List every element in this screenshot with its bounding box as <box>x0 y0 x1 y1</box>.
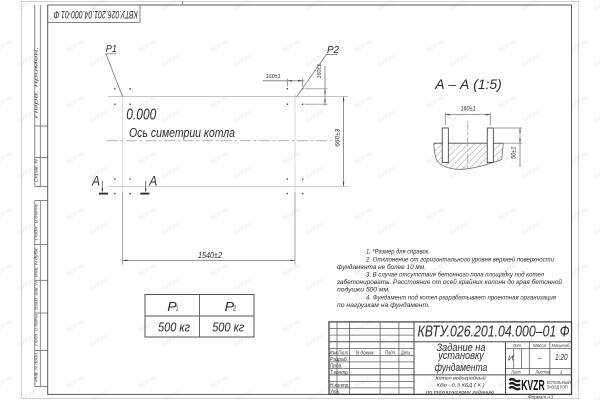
svg-text:Формат А3: Формат А3 <box>528 394 553 399</box>
svg-text:KVZR: KVZR <box>521 377 545 394</box>
svg-text:kvzr.ru: kvzr.ru <box>234 165 252 180</box>
svg-text:kvzr.ru: kvzr.ru <box>594 333 600 348</box>
svg-text:kvzr.ru: kvzr.ru <box>0 151 13 166</box>
svg-text:Подп. и дата: Подп. и дата <box>34 203 39 240</box>
svg-text:по нагрузкам на фундамент.: по нагрузкам на фундамент. <box>337 301 430 309</box>
svg-text:kvzr.ru: kvzr.ru <box>570 151 588 166</box>
svg-text:1: 1 <box>560 370 563 376</box>
svg-text:160±1: 160±1 <box>461 105 476 112</box>
svg-text:kvzr.ru: kvzr.ru <box>90 109 108 124</box>
svg-text:Подп.: Подп. <box>385 350 396 356</box>
svg-text:660±3: 660±3 <box>334 128 341 146</box>
svg-text:500 кг: 500 кг <box>158 320 190 335</box>
svg-text:Подп. и дата: Подп. и дата <box>34 314 39 346</box>
svg-text:kvzr.ru: kvzr.ru <box>426 39 444 54</box>
svg-text:Масштаб: Масштаб <box>552 343 570 349</box>
svg-text:Лист: Лист <box>510 370 520 376</box>
svg-text:kvzr.ru: kvzr.ru <box>594 0 600 12</box>
svg-text:160±1: 160±1 <box>317 64 323 79</box>
svg-text:kvzr.ru: kvzr.ru <box>594 221 600 236</box>
svg-text:50±1: 50±1 <box>511 146 518 159</box>
svg-text:А – А (1:5): А – А (1:5) <box>434 77 502 92</box>
svg-text:kvzr.ru: kvzr.ru <box>282 151 300 166</box>
svg-text:kvzr.ru: kvzr.ru <box>234 53 252 68</box>
svg-text:kvzr.ru: kvzr.ru <box>162 109 180 124</box>
svg-text:kvzr.ru: kvzr.ru <box>570 319 588 334</box>
svg-text:P1: P1 <box>106 44 117 55</box>
svg-text:kvzr.ru: kvzr.ru <box>378 221 396 236</box>
svg-text:kvzr.ru: kvzr.ru <box>594 109 600 124</box>
svg-text:3. В случае отсутствия бетонно: 3. В случае отсутствия бетонного пола пл… <box>366 271 544 279</box>
svg-text:Инв. N подл.: Инв. N подл. <box>34 352 39 382</box>
svg-text:kvzr.ru: kvzr.ru <box>66 151 84 166</box>
svg-text:kvzr.ru: kvzr.ru <box>498 207 516 222</box>
svg-text:1: 1 <box>176 306 179 313</box>
svg-text:kvzr.ru: kvzr.ru <box>234 333 252 348</box>
svg-text:kvzr.ru: kvzr.ru <box>306 221 324 236</box>
svg-text:Разраб.: Разраб. <box>330 357 348 363</box>
svg-text:установку: установку <box>437 350 485 362</box>
svg-text:И: И <box>508 354 514 363</box>
svg-text:kvzr.ru: kvzr.ru <box>210 39 228 54</box>
svg-text:kvzr.ru: kvzr.ru <box>354 151 372 166</box>
svg-text:kvzr.ru: kvzr.ru <box>210 207 228 222</box>
svg-text:kvzr.ru: kvzr.ru <box>306 165 324 180</box>
svg-text:подушки 500 мм.: подушки 500 мм. <box>337 286 390 294</box>
svg-text:–: – <box>537 355 542 362</box>
svg-text:kvzr.ru: kvzr.ru <box>570 95 588 110</box>
svg-text:kvzr.ru: kvzr.ru <box>282 375 300 390</box>
svg-text:kvzr.ru: kvzr.ru <box>0 319 13 334</box>
svg-text:по техническому заданию: по техническому заданию <box>426 389 495 394</box>
svg-text:kvzr.ru: kvzr.ru <box>138 151 156 166</box>
svg-text:kvzr.ru: kvzr.ru <box>306 109 324 124</box>
svg-text:2. Отклонение от горизонтально: 2. Отклонение от горизонтального уровня … <box>365 255 554 263</box>
svg-text:kvzr.ru: kvzr.ru <box>378 165 396 180</box>
svg-text:kvzr.ru: kvzr.ru <box>66 95 84 110</box>
svg-text:kvzr.ru: kvzr.ru <box>498 39 516 54</box>
svg-text:kvzr.ru: kvzr.ru <box>282 39 300 54</box>
svg-text:kvzr.ru: kvzr.ru <box>282 95 300 110</box>
svg-text:kvzr.ru: kvzr.ru <box>66 207 84 222</box>
svg-text:kvzr.ru: kvzr.ru <box>210 95 228 110</box>
svg-text:Утв.: Утв. <box>330 390 340 396</box>
svg-text:kvzr.ru: kvzr.ru <box>66 39 84 54</box>
svg-text:kvzr.ru: kvzr.ru <box>354 375 372 390</box>
svg-text:kvzr.ru: kvzr.ru <box>594 389 600 400</box>
svg-text:КВТУ.026.201.04.000-01 Ф: КВТУ.026.201.04.000-01 Ф <box>54 8 138 20</box>
svg-text:kvzr.ru: kvzr.ru <box>162 333 180 348</box>
svg-text:kvzr.ru: kvzr.ru <box>234 221 252 236</box>
svg-text:Масса: Масса <box>533 343 546 349</box>
svg-text:kvzr.ru: kvzr.ru <box>0 375 13 390</box>
svg-text:kvzr.ru: kvzr.ru <box>450 221 468 236</box>
svg-text:kvzr.ru: kvzr.ru <box>210 263 228 278</box>
svg-text:kvzr.ru: kvzr.ru <box>570 263 588 278</box>
svg-text:kvzr.ru: kvzr.ru <box>522 109 540 124</box>
svg-text:1. *Размер для справок.: 1. *Размер для справок. <box>366 248 430 256</box>
svg-text:Ось симетрии котла: Ось симетрии котла <box>129 125 235 140</box>
svg-text:kvzr.ru: kvzr.ru <box>162 221 180 236</box>
svg-text:kvzr.ru: kvzr.ru <box>138 39 156 54</box>
svg-text:kvzr.ru: kvzr.ru <box>594 165 600 180</box>
svg-text:2: 2 <box>232 306 236 313</box>
svg-text:kvzr.ru: kvzr.ru <box>210 375 228 390</box>
svg-text:Дата: Дата <box>400 350 410 356</box>
svg-text:kvzr.ru: kvzr.ru <box>306 277 324 292</box>
svg-text:kvzr.ru: kvzr.ru <box>138 263 156 278</box>
svg-text:kvzr.ru: kvzr.ru <box>306 333 324 348</box>
svg-text:kvzr.ru: kvzr.ru <box>138 207 156 222</box>
svg-text:Справ. N: Справ. N <box>34 158 39 182</box>
svg-text:kvzr.ru: kvzr.ru <box>570 207 588 222</box>
svg-text:kvzr.ru: kvzr.ru <box>90 221 108 236</box>
svg-text:kvzr.ru: kvzr.ru <box>282 207 300 222</box>
svg-text:kvzr.ru: kvzr.ru <box>90 333 108 348</box>
svg-text:P2: P2 <box>327 45 339 56</box>
svg-text:kvzr.ru: kvzr.ru <box>522 53 540 68</box>
svg-text:Лит.: Лит. <box>512 343 522 349</box>
svg-text:kvzr.ru: kvzr.ru <box>378 109 396 124</box>
svg-text:Котел водогрейный: Котел водогрейный <box>436 374 486 380</box>
svg-text:kvzr.ru: kvzr.ru <box>162 53 180 68</box>
svg-text:kvzr.ru: kvzr.ru <box>138 375 156 390</box>
svg-text:kvzr.ru: kvzr.ru <box>522 221 540 236</box>
svg-text:Инв. N дубл.: Инв. N дубл. <box>34 247 39 277</box>
svg-text:kvzr.ru: kvzr.ru <box>0 95 13 110</box>
svg-text:КВр –0,3 КБД ( К ): КВр –0,3 КБД ( К ) <box>437 383 486 388</box>
svg-text:kvzr.ru: kvzr.ru <box>282 263 300 278</box>
svg-text:Перв. примен.: Перв. примен. <box>34 47 39 119</box>
svg-text:500 кг: 500 кг <box>212 320 244 335</box>
svg-text:kvzr.ru: kvzr.ru <box>282 319 300 334</box>
svg-text:A: A <box>148 172 157 188</box>
svg-text:kvzr.ru: kvzr.ru <box>522 165 540 180</box>
svg-text:фундамента не более 10 мм.: фундамента не более 10 мм. <box>337 263 426 271</box>
svg-text:КВТУ.026.201.04.000–01 Ф: КВТУ.026.201.04.000–01 Ф <box>418 323 570 340</box>
svg-text:kvzr.ru: kvzr.ru <box>354 39 372 54</box>
svg-text:Н.контр.: Н.контр. <box>330 383 350 389</box>
svg-text:kvzr.ru: kvzr.ru <box>450 53 468 68</box>
svg-text:kvzr.ru: kvzr.ru <box>90 277 108 292</box>
svg-text:kvzr.ru: kvzr.ru <box>162 277 180 292</box>
svg-text:kvzr.ru: kvzr.ru <box>354 207 372 222</box>
svg-text:kvzr.ru: kvzr.ru <box>378 53 396 68</box>
svg-text:kvzr.ru: kvzr.ru <box>138 319 156 334</box>
svg-text:kvzr.ru: kvzr.ru <box>0 207 13 222</box>
svg-text:kvzr.ru: kvzr.ru <box>0 263 13 278</box>
svg-text:ЗАВОД РЭП: ЗАВОД РЭП <box>547 385 568 390</box>
svg-text:kvzr.ru: kvzr.ru <box>66 319 84 334</box>
svg-text:kvzr.ru: kvzr.ru <box>570 39 588 54</box>
svg-text:kvzr.ru: kvzr.ru <box>426 207 444 222</box>
svg-text:kvzr.ru: kvzr.ru <box>234 277 252 292</box>
svg-text:Т.контр.: Т.контр. <box>330 370 349 376</box>
svg-text:kvzr.ru: kvzr.ru <box>66 375 84 390</box>
svg-text:фундамента: фундамента <box>435 362 488 374</box>
svg-text:kvzr.ru: kvzr.ru <box>498 95 516 110</box>
svg-text:0.000: 0.000 <box>126 107 156 124</box>
svg-text:забетонировать. Расстояние от: забетонировать. Расстояние от осей крайн… <box>336 278 562 286</box>
svg-text:kvzr.ru: kvzr.ru <box>354 95 372 110</box>
svg-text:kvzr.ru: kvzr.ru <box>162 165 180 180</box>
svg-text:4. Фундамент под котел разраба: 4. Фундамент под котел разрабатывает про… <box>366 293 556 301</box>
svg-text:kvzr.ru: kvzr.ru <box>570 375 588 390</box>
svg-text:kvzr.ru: kvzr.ru <box>354 319 372 334</box>
svg-text:N докум.: N докум. <box>356 350 375 356</box>
svg-text:kvzr.ru: kvzr.ru <box>66 263 84 278</box>
svg-text:1:20: 1:20 <box>555 352 568 362</box>
svg-text:160±1: 160±1 <box>266 74 281 80</box>
svg-text:kvzr.ru: kvzr.ru <box>594 53 600 68</box>
svg-text:kvzr.ru: kvzr.ru <box>210 151 228 166</box>
svg-text:1540±2: 1540±2 <box>198 250 222 260</box>
svg-text:A: A <box>91 172 100 188</box>
svg-text:Листов: Листов <box>535 370 551 376</box>
svg-text:Взам. инв. N: Взам. инв. N <box>34 280 39 310</box>
svg-text:Изм.Лист: Изм.Лист <box>330 350 349 356</box>
svg-text:kvzr.ru: kvzr.ru <box>234 109 252 124</box>
svg-text:Пров.: Пров. <box>330 364 343 370</box>
svg-text:kvzr.ru: kvzr.ru <box>0 39 13 54</box>
svg-text:kvzr.ru: kvzr.ru <box>594 277 600 292</box>
svg-text:kvzr.ru: kvzr.ru <box>426 95 444 110</box>
